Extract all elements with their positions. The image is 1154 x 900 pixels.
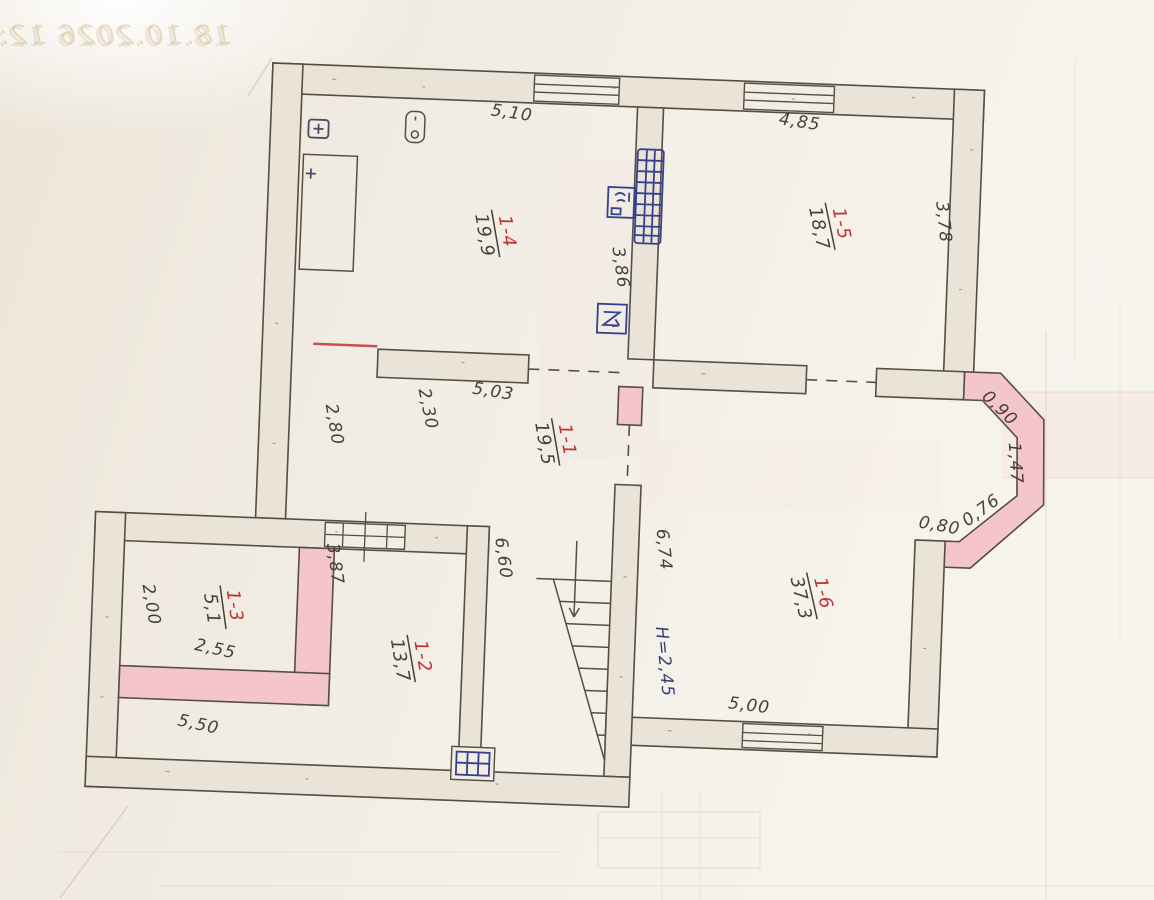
room-area: 5,1 xyxy=(199,592,224,626)
dim-bay-seg2: 1,47 xyxy=(1004,442,1027,485)
floor-plan-svg: 18.10.2026 12:4 18.10.2026 12:4 xyxy=(0,0,1154,900)
wall-stub-pink xyxy=(617,387,642,426)
scanned-floor-plan-page: 18.10.2026 12:4 18.10.2026 12:4 xyxy=(0,0,1154,900)
timestamp-ghost: 18.10.2026 12:4 18.10.2026 12:4 xyxy=(0,20,232,53)
dim-stair-wall: 6,74 xyxy=(651,528,675,572)
window-bottom-r16 xyxy=(742,724,823,751)
wall-bay-lead xyxy=(876,368,965,399)
wall-central-right xyxy=(653,360,807,394)
window-top-left xyxy=(534,75,620,104)
room-number: 1-3 xyxy=(222,588,247,623)
flue-grid-icon xyxy=(451,746,495,781)
dim-r15-depth: 3,78 xyxy=(931,200,955,244)
timestamp-ghost-text: 18.10.2026 12:4 xyxy=(0,20,232,51)
window-top-right xyxy=(744,83,835,112)
wall-central-left xyxy=(377,349,529,383)
